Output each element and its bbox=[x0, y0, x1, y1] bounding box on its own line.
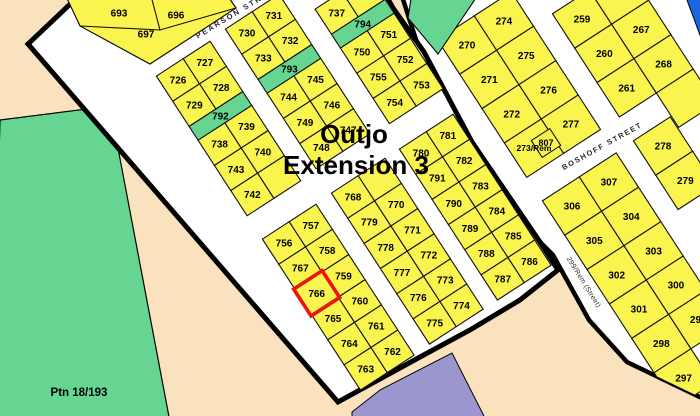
plot-label-732: 732 bbox=[282, 36, 299, 47]
plot-label-779: 779 bbox=[361, 218, 378, 229]
plot-label-792: 792 bbox=[212, 111, 229, 122]
plot-label-787: 787 bbox=[494, 274, 511, 285]
plot-label-259: 259 bbox=[574, 15, 591, 26]
plot-label-299: 299 bbox=[690, 315, 700, 326]
plot-label-758: 758 bbox=[319, 246, 336, 257]
plot-label-278: 278 bbox=[655, 142, 672, 153]
plot-label-307: 307 bbox=[601, 178, 618, 189]
plot-label-790: 790 bbox=[445, 199, 462, 210]
plot-label-737: 737 bbox=[328, 8, 345, 19]
plot-label-761: 761 bbox=[368, 322, 385, 333]
plot-label-726: 726 bbox=[170, 75, 187, 86]
plot-label-277: 277 bbox=[563, 120, 580, 131]
plot-label-778: 778 bbox=[377, 243, 394, 254]
plot-label-729: 729 bbox=[186, 101, 203, 112]
plot-label-786: 786 bbox=[521, 257, 538, 268]
plot-label-764: 764 bbox=[341, 339, 358, 350]
ptn-18-193-label: Ptn 18/193 bbox=[51, 387, 108, 399]
plot-label-276: 276 bbox=[540, 85, 557, 96]
plot-label-745: 745 bbox=[307, 75, 324, 86]
plot-label-302: 302 bbox=[608, 270, 625, 281]
plot-label-784: 784 bbox=[488, 207, 505, 218]
plot-label-728: 728 bbox=[213, 83, 230, 94]
plot-label-756: 756 bbox=[276, 238, 293, 249]
map-title-line1: Outjo bbox=[320, 119, 388, 149]
plot-label-274: 274 bbox=[496, 17, 513, 28]
plot-label-752: 752 bbox=[397, 55, 414, 66]
plot-label-275: 275 bbox=[518, 51, 535, 62]
plot-label-743: 743 bbox=[228, 165, 245, 176]
plot-label-785: 785 bbox=[505, 232, 522, 243]
plot-label-696: 696 bbox=[168, 11, 185, 22]
plot-label-793: 793 bbox=[281, 64, 298, 75]
plot-label-301: 301 bbox=[631, 305, 648, 316]
plot-label-303: 303 bbox=[645, 246, 662, 257]
plot-label-751: 751 bbox=[381, 30, 398, 41]
plot-label-789: 789 bbox=[462, 224, 479, 235]
plot-label-730: 730 bbox=[239, 28, 256, 39]
plot-label-773: 773 bbox=[437, 276, 454, 287]
plot-label-297: 297 bbox=[675, 373, 692, 384]
plot-label-754: 754 bbox=[386, 98, 403, 109]
plot-label-750: 750 bbox=[354, 47, 371, 58]
plot-label-807: 807 bbox=[538, 138, 553, 148]
plot-label-776: 776 bbox=[410, 293, 427, 304]
plot-label-300: 300 bbox=[668, 281, 685, 292]
plot-label-755: 755 bbox=[370, 73, 387, 84]
plot-label-298: 298 bbox=[653, 339, 670, 350]
plot-label-759: 759 bbox=[335, 271, 352, 282]
plot-label-765: 765 bbox=[325, 314, 342, 325]
plot-label-272: 272 bbox=[503, 109, 520, 120]
plot-label-781: 781 bbox=[439, 131, 456, 142]
plot-label-763: 763 bbox=[357, 364, 374, 375]
plot-label-731: 731 bbox=[265, 11, 282, 22]
plot-label-762: 762 bbox=[384, 347, 401, 358]
plot-label-775: 775 bbox=[426, 318, 443, 329]
plot-label-744: 744 bbox=[280, 93, 297, 104]
plot-label-270: 270 bbox=[459, 41, 476, 52]
map-viewport: 270274271275272276273/Rem277259260267261… bbox=[0, 0, 700, 416]
plot-label-749: 749 bbox=[297, 118, 314, 129]
plot-label-260: 260 bbox=[596, 49, 613, 60]
plot-label-768: 768 bbox=[345, 192, 362, 203]
plot-label-740: 740 bbox=[254, 147, 271, 158]
plot-label-742: 742 bbox=[244, 190, 261, 201]
plot-label-727: 727 bbox=[196, 58, 213, 69]
plot-label-279: 279 bbox=[677, 176, 694, 187]
plot-label-794: 794 bbox=[354, 19, 371, 30]
plot-label-746: 746 bbox=[323, 100, 340, 111]
plot-label-261: 261 bbox=[618, 83, 635, 94]
plot-label-304: 304 bbox=[623, 212, 640, 223]
plot-label-783: 783 bbox=[472, 181, 489, 192]
plot-label-697: 697 bbox=[138, 30, 155, 41]
map-title-line2: Extension 3 bbox=[283, 150, 429, 180]
plot-label-767: 767 bbox=[292, 264, 309, 275]
plot-label-306: 306 bbox=[564, 202, 581, 213]
plot-label-693: 693 bbox=[111, 9, 128, 20]
plot-label-757: 757 bbox=[302, 221, 319, 232]
plot-label-305: 305 bbox=[586, 236, 603, 247]
plot-label-782: 782 bbox=[456, 156, 473, 167]
plot-label-774: 774 bbox=[453, 301, 470, 312]
plot-label-791: 791 bbox=[429, 174, 446, 185]
plot-label-739: 739 bbox=[238, 122, 255, 133]
plot-label-271: 271 bbox=[481, 75, 498, 86]
outjo-cadastral-map: 270274271275272276273/Rem277259260267261… bbox=[0, 0, 700, 416]
plot-label-267: 267 bbox=[633, 25, 650, 36]
plot-label-733: 733 bbox=[255, 54, 272, 65]
plot-label-268: 268 bbox=[655, 59, 672, 70]
plot-label-771: 771 bbox=[404, 225, 421, 236]
plot-label-770: 770 bbox=[388, 200, 405, 211]
plot-label-772: 772 bbox=[420, 251, 437, 262]
plot-label-738: 738 bbox=[211, 140, 228, 151]
plot-label-788: 788 bbox=[478, 249, 495, 260]
plot-label-766: 766 bbox=[308, 289, 325, 300]
plot-label-760: 760 bbox=[351, 297, 368, 308]
plot-label-753: 753 bbox=[413, 80, 430, 91]
plot-label-777: 777 bbox=[394, 268, 411, 279]
